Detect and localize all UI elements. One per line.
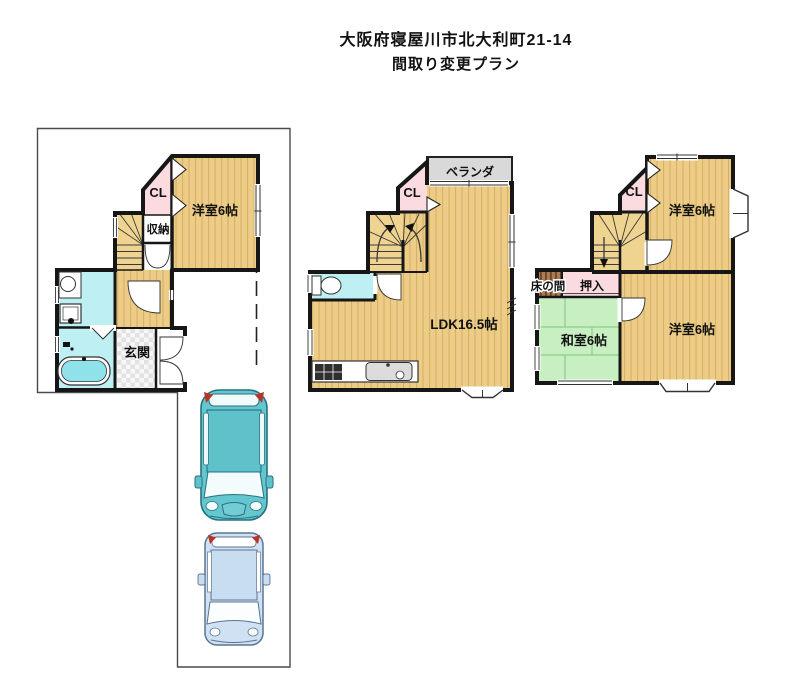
- closet-label-2f: CL: [403, 185, 420, 200]
- bay-window: [730, 189, 749, 238]
- japanese-room-label: 和室6帖: [561, 333, 607, 348]
- kitchen-sink-icon: [366, 363, 412, 381]
- window: [534, 346, 541, 371]
- toilet-icon: [312, 276, 341, 295]
- window: [112, 217, 118, 238]
- closet-label-1f: CL: [149, 185, 166, 200]
- kitchen-counter: [312, 361, 418, 382]
- floor-plan-2f: ベランダ CL LDK16.5帖: [307, 157, 517, 398]
- bay-window: [659, 380, 716, 392]
- stairs-1f: [115, 213, 143, 270]
- western-room-top-label: 洋室6帖: [669, 203, 715, 218]
- laundry-pan-icon: [60, 304, 81, 324]
- double-swing-door: [145, 245, 171, 269]
- bay-window: [461, 387, 503, 398]
- entrance-label: 玄関: [124, 345, 150, 360]
- plan-subtitle: 間取り変更プラン: [392, 55, 520, 73]
- address-title: 大阪府寝屋川市北大利町21-14: [340, 30, 573, 49]
- oshiire-label: 押入: [580, 278, 604, 293]
- western-room-bottom-label: 洋室6帖: [669, 322, 715, 337]
- veranda-label: ベランダ: [446, 164, 494, 179]
- window: [557, 380, 613, 387]
- floor-plan-3f: CL 洋室6帖 床の間 押入 和室6帖 洋室6帖: [531, 154, 748, 392]
- window: [169, 290, 175, 300]
- veranda-sliding-door: [429, 180, 509, 187]
- window: [534, 304, 541, 330]
- floor-plan-page: 大阪府寝屋川市北大利町21-14 間取り変更プラン: [0, 0, 800, 698]
- storage-label: 収納: [147, 222, 170, 236]
- window: [255, 184, 262, 237]
- window: [656, 154, 698, 161]
- car-blue: [198, 533, 270, 645]
- closet-label-3f: CL: [625, 184, 642, 199]
- stove-icon: [315, 364, 342, 380]
- bathtub-icon: [58, 357, 110, 385]
- window: [509, 214, 516, 268]
- stairs-2f: [368, 213, 403, 272]
- car-teal: [195, 390, 273, 520]
- tokonoma-label: 床の間: [531, 279, 566, 293]
- window: [54, 336, 60, 353]
- ldk-label: LDK16.5帖: [430, 316, 498, 332]
- western-room-label-1f: 洋室6帖: [192, 203, 238, 218]
- page-title: 大阪府寝屋川市北大利町21-14 間取り変更プラン: [340, 30, 573, 73]
- sink-icon: [59, 272, 81, 298]
- floor-plan-1f: CL 収納 洋室6帖 玄関: [38, 129, 291, 668]
- window: [307, 329, 314, 356]
- floor-plan-drawing: 大阪府寝屋川市北大利町21-14 間取り変更プラン: [0, 0, 800, 698]
